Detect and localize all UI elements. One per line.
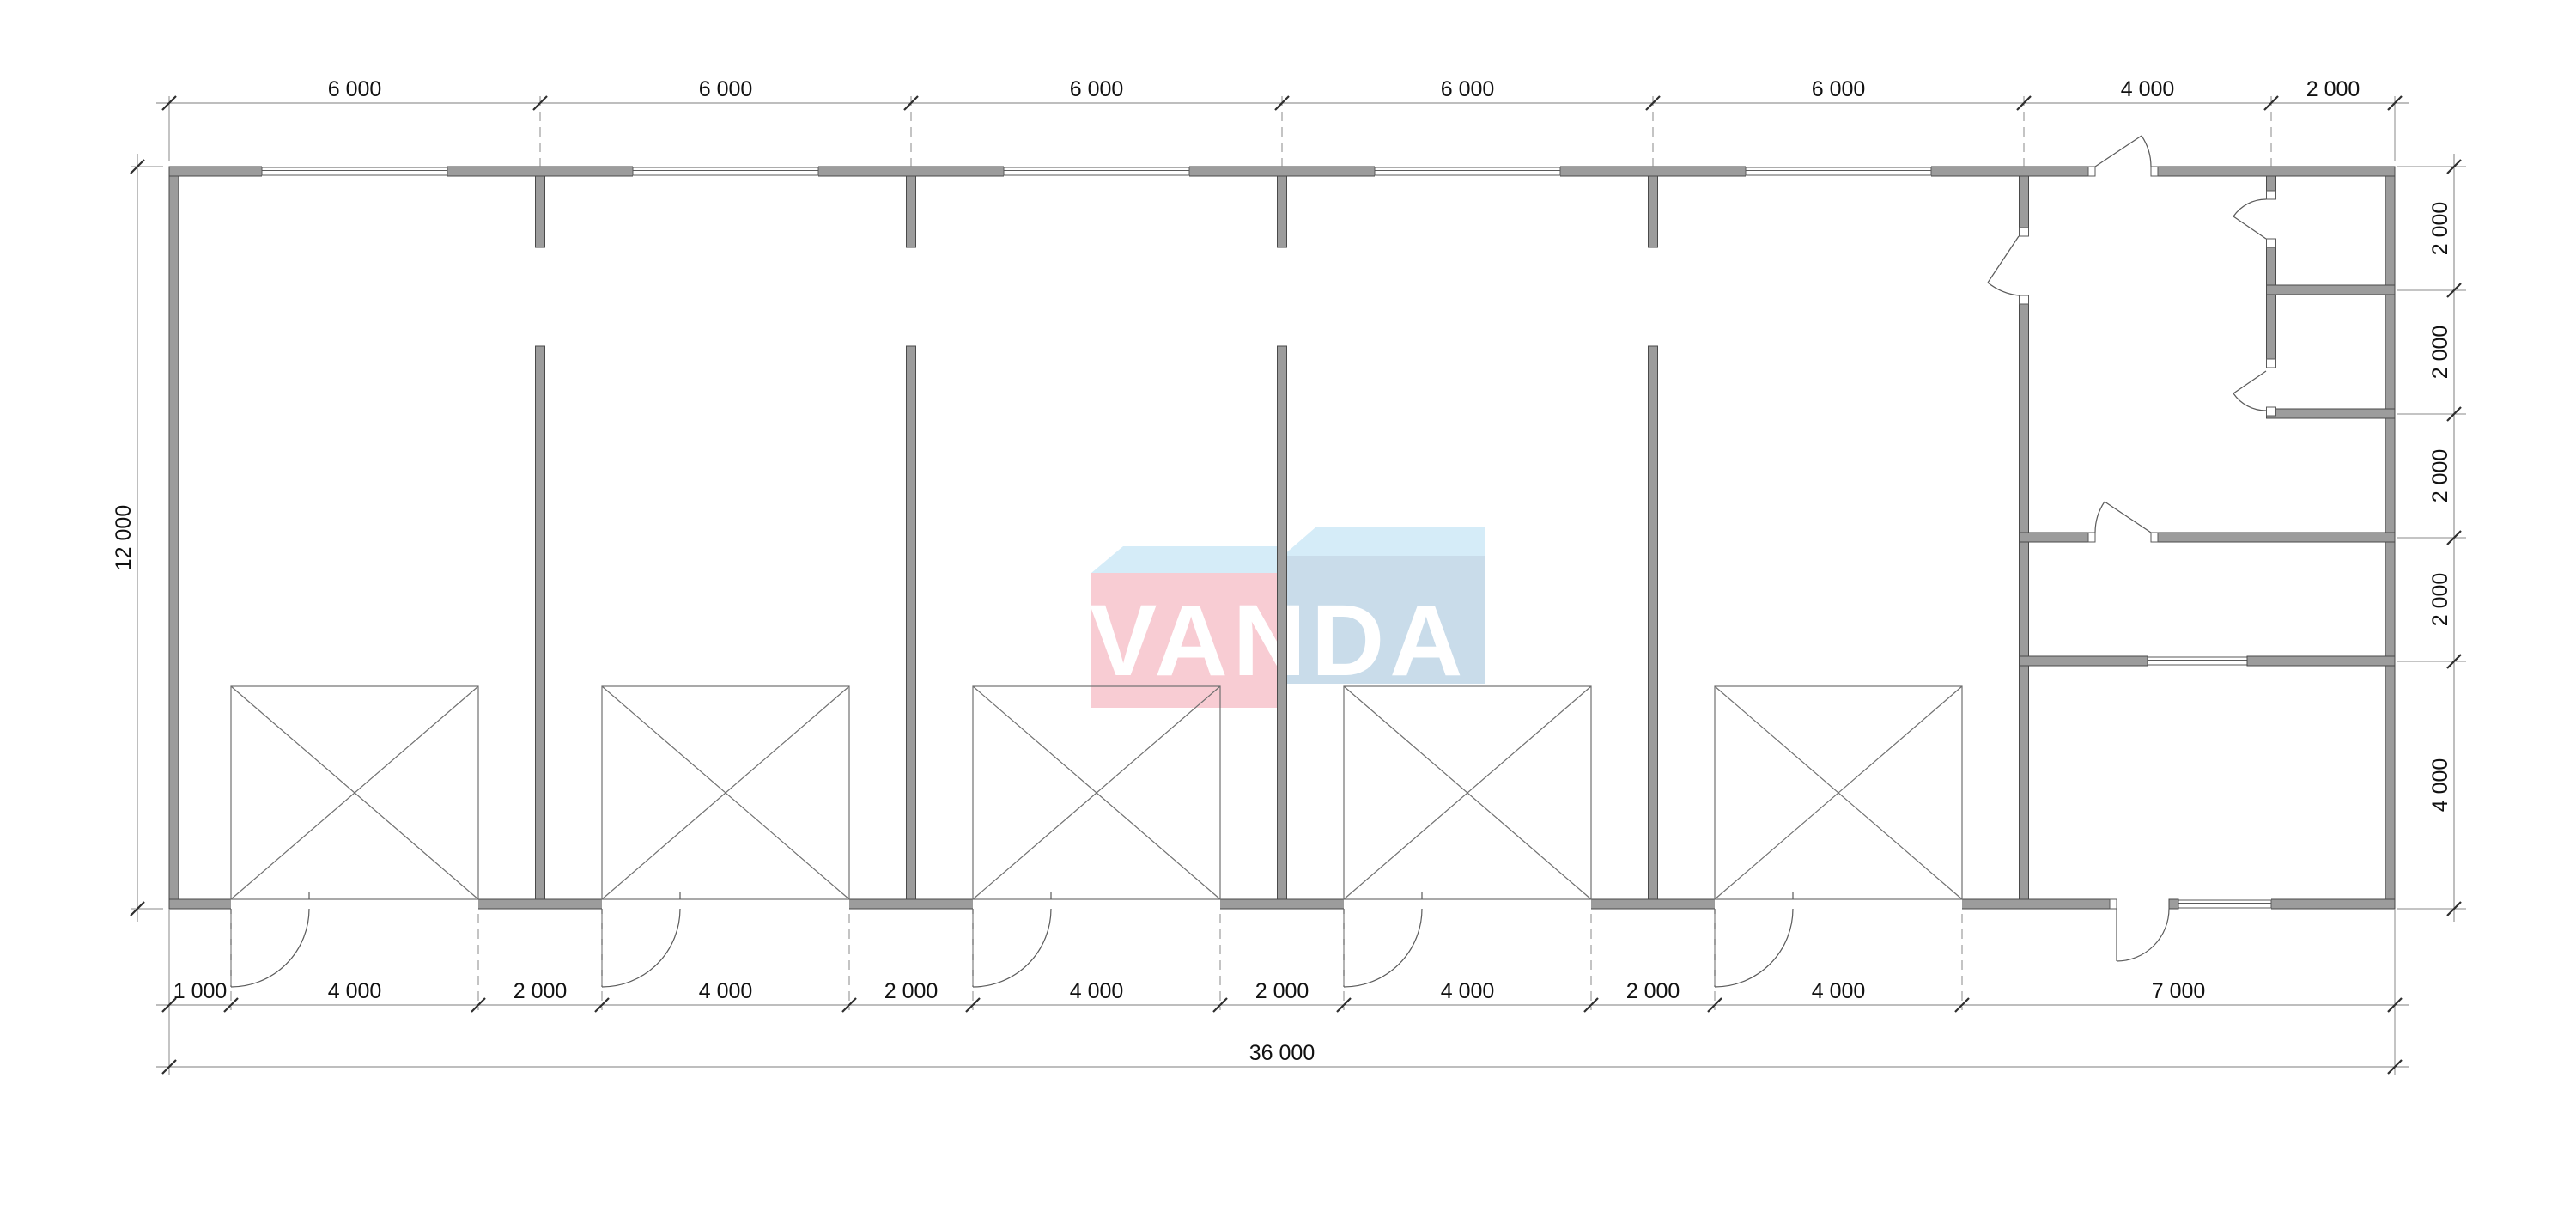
dim-bottom-6: 4 000 (1070, 979, 1124, 1003)
partition-col6000 (536, 346, 545, 899)
floor-plan-canvas: VANDA (0, 0, 2576, 1224)
dim-top-2: 6 000 (699, 77, 753, 101)
garage-door-bay3 (973, 686, 1220, 899)
dim-right-5: 4 000 (2428, 758, 2452, 813)
dim-top-5: 6 000 (1812, 77, 1866, 101)
floor-plan-drawing: VANDA (0, 0, 2576, 1224)
garage-doors (231, 686, 1962, 899)
dim-bottom-8: 4 000 (1441, 979, 1495, 1003)
partition-col24000 (1649, 346, 1658, 899)
rooms-bottom-wall (2267, 409, 2396, 418)
window-north-bay5 (1746, 167, 1931, 175)
dim-right-1: 2 000 (2428, 202, 2452, 256)
dim-bottom-1: 1 000 (173, 979, 228, 1003)
room-a-door (2233, 199, 2266, 239)
wall-west (169, 176, 179, 899)
partition-col18000 (1278, 346, 1287, 899)
rooms-west-wall-s3 (2267, 295, 2276, 359)
partition-stub-col12000 (907, 176, 916, 247)
dim-bottom-9: 2 000 (1626, 979, 1680, 1003)
partition-stub-col18000 (1278, 176, 1287, 247)
dim-top-6: 4 000 (2121, 77, 2175, 101)
backroom-wall-east-seg (2247, 656, 2395, 666)
dim-bottom-10: 4 000 (1812, 979, 1866, 1003)
window-north-bay1 (262, 167, 447, 175)
hall-south-door (2095, 502, 2151, 533)
window-north-bay4 (1375, 167, 1560, 175)
dim-bottom-5: 2 000 (884, 979, 939, 1003)
entrance-door (2095, 136, 2151, 167)
rooms-divider-wall (2267, 285, 2396, 295)
wall-south (169, 899, 2395, 909)
dim-left-height: 12 000 (112, 505, 136, 570)
office-west-wall-upper (2020, 176, 2029, 228)
office-exterior-door (2117, 909, 2169, 961)
logo-right-slab-top-face (1283, 527, 1485, 556)
garage-door-bay4 (1344, 686, 1591, 899)
window-north-bay2 (633, 167, 818, 175)
dim-top-4: 6 000 (1441, 77, 1495, 101)
partition-col12000 (907, 346, 916, 899)
dim-top-1: 6 000 (328, 77, 382, 101)
partition-stub-col6000 (536, 176, 545, 247)
window-north-bay3 (1004, 167, 1189, 175)
dimension-bottom-overall: 36 000 (156, 1041, 2409, 1074)
rooms-west-wall-s1 (2267, 176, 2276, 191)
office-west-wall-lower (2020, 304, 2029, 899)
rooms-west-wall-s2 (2267, 247, 2276, 285)
partition-stub-col24000 (1649, 176, 1658, 247)
window-interior-partition (2148, 657, 2247, 665)
garage-door-bay5 (1715, 686, 1962, 899)
hall-west-door (1988, 236, 2019, 295)
dim-bottom-2: 4 000 (328, 979, 382, 1003)
hall-wall-east-seg (2158, 533, 2395, 542)
logo-left-slab-top-face (1091, 546, 1279, 573)
windows (262, 167, 2271, 908)
dim-bottom-11: 7 000 (2152, 979, 2206, 1003)
dim-right-4: 2 000 (2428, 573, 2452, 627)
hall-wall-west-seg (2020, 533, 2089, 542)
dim-top-7: 2 000 (2306, 77, 2360, 101)
vanda-logo: VANDA (1090, 527, 1485, 708)
dim-total-width: 36 000 (1249, 1041, 1315, 1065)
dim-bottom-3: 2 000 (513, 979, 568, 1003)
dim-top-3: 6 000 (1070, 77, 1124, 101)
dim-right-3: 2 000 (2428, 449, 2452, 503)
garage-door-bay1 (231, 686, 478, 899)
dim-bottom-7: 2 000 (1255, 979, 1309, 1003)
backroom-wall-west-seg (2020, 656, 2148, 666)
dim-right-2: 2 000 (2428, 326, 2452, 380)
room-b-door (2233, 371, 2266, 411)
dimension-right-chain: 2 000 2 000 2 000 2 000 4 000 (2397, 154, 2466, 922)
dim-bottom-4: 4 000 (699, 979, 753, 1003)
window-south-office (2178, 900, 2271, 908)
garage-door-bay2 (602, 686, 849, 899)
dimension-top-chain: 6 000 6 000 6 000 6 000 6 000 4 000 2 00… (156, 77, 2409, 167)
wall-north (169, 167, 2395, 176)
dimension-left-chain: 12 000 (112, 154, 163, 922)
south-door-pier (2169, 899, 2178, 909)
